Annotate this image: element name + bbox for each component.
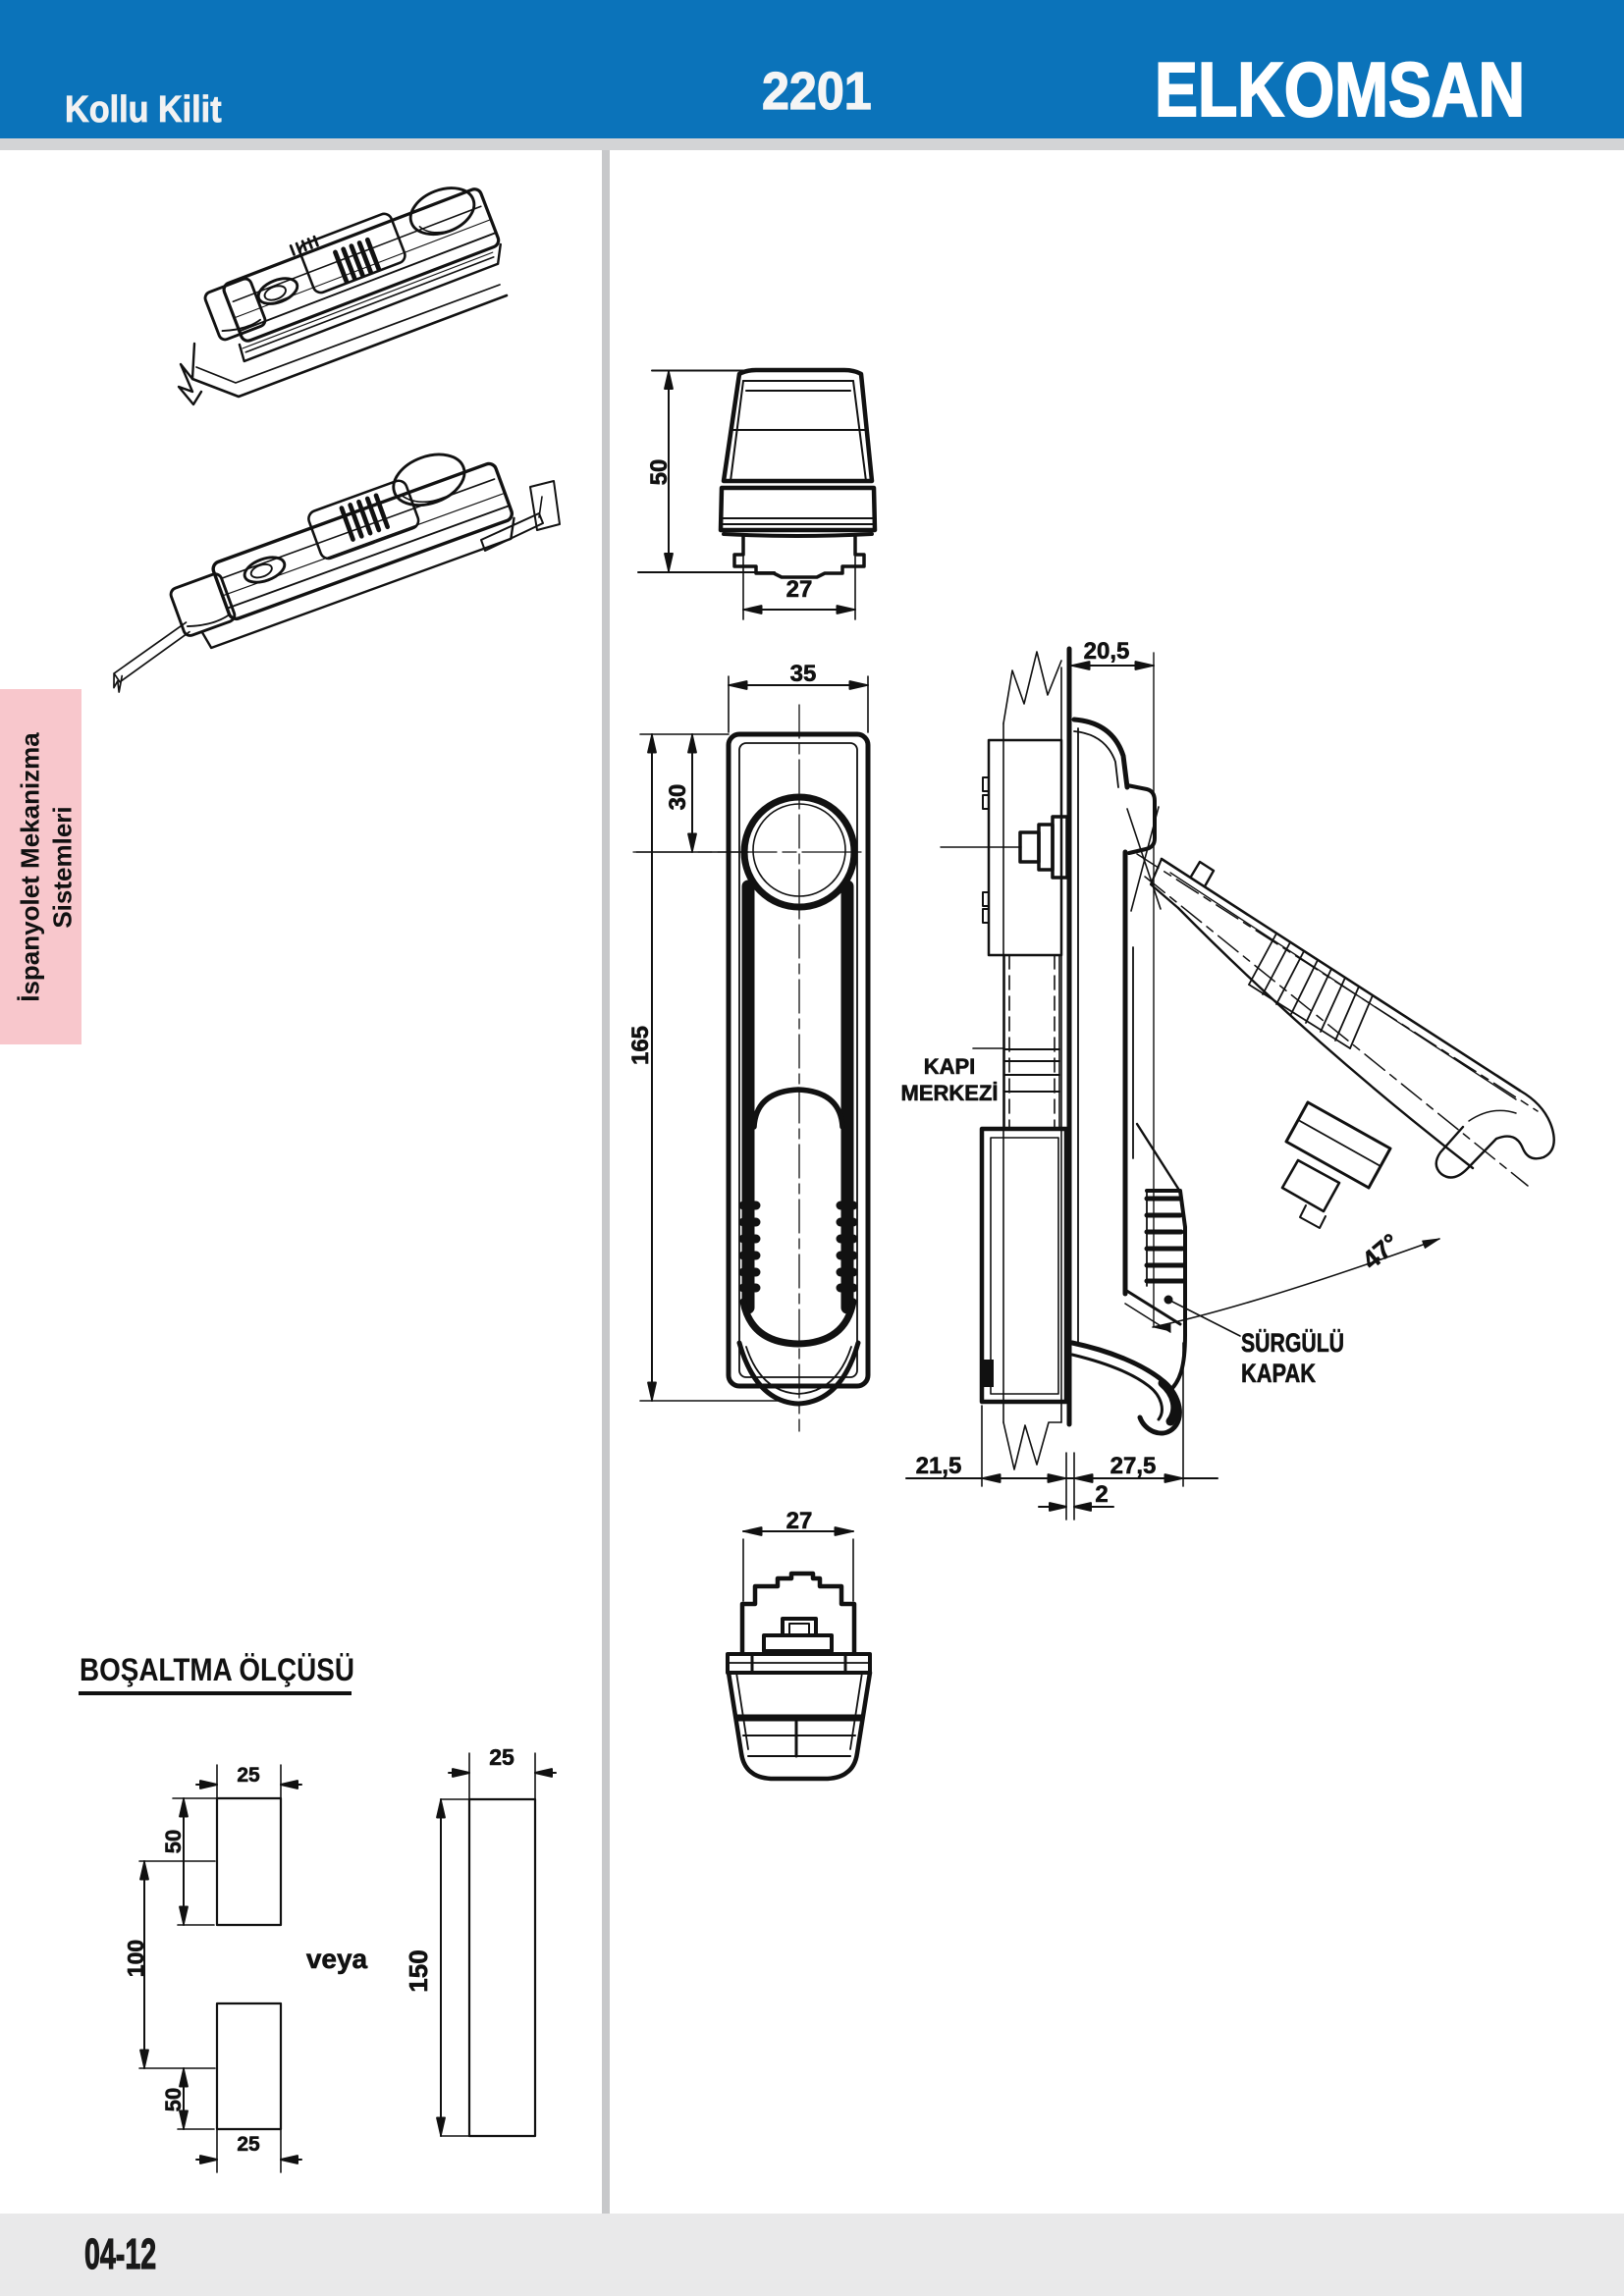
- svg-text:KAPAK: KAPAK: [1241, 1359, 1316, 1388]
- svg-text:25: 25: [489, 1744, 514, 1770]
- svg-text:165: 165: [627, 1026, 654, 1065]
- svg-text:SÜRGÜLÜ: SÜRGÜLÜ: [1241, 1328, 1344, 1358]
- svg-text:47°: 47°: [1356, 1228, 1404, 1275]
- svg-text:KAPI: KAPI: [924, 1054, 976, 1079]
- svg-text:100: 100: [123, 1940, 148, 1977]
- svg-text:50: 50: [161, 1830, 186, 1853]
- svg-text:27,5: 27,5: [1110, 1453, 1157, 1479]
- svg-text:27: 27: [786, 576, 813, 603]
- svg-text:21,5: 21,5: [916, 1453, 962, 1479]
- svg-text:veya: veya: [306, 1944, 368, 1974]
- svg-text:35: 35: [790, 661, 817, 687]
- svg-text:MERKEZİ: MERKEZİ: [901, 1081, 999, 1105]
- svg-text:30: 30: [665, 784, 691, 811]
- svg-text:25: 25: [237, 1764, 260, 1787]
- svg-text:20,5: 20,5: [1084, 638, 1130, 665]
- svg-text:27: 27: [786, 1508, 813, 1534]
- svg-text:50: 50: [161, 2088, 186, 2111]
- svg-text:25: 25: [237, 2133, 260, 2156]
- svg-text:50: 50: [646, 459, 673, 486]
- svg-text:150: 150: [404, 1949, 433, 1992]
- svg-text:2: 2: [1095, 1481, 1108, 1508]
